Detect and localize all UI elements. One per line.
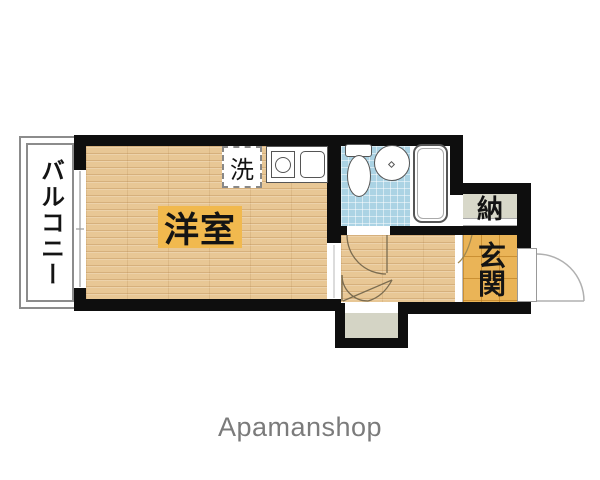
room-label: 洋室 xyxy=(158,206,242,248)
footer-brand-text: Apamanshop xyxy=(218,412,382,442)
wall-bottom-left xyxy=(74,299,341,311)
entrance-label-text: 玄関 xyxy=(476,241,504,297)
storage-label: 納 xyxy=(463,191,517,223)
wall-top xyxy=(74,135,463,146)
toilet-icon xyxy=(347,155,371,197)
wall-bottom-right xyxy=(398,302,531,314)
balcony-label: バルコニー xyxy=(26,143,74,302)
bathroom-door-opening xyxy=(347,226,390,235)
utility-box-threshold xyxy=(345,303,398,313)
footer-brand: Apamanshop xyxy=(0,412,600,443)
wall-left-upper xyxy=(74,146,86,170)
entrance-label: 玄関 xyxy=(467,237,513,300)
floorplan-canvas: バルコニー 洗 xyxy=(0,0,600,480)
laundry-label: 洗 xyxy=(230,150,254,185)
hallway-floor xyxy=(341,235,455,302)
utility-box-fill xyxy=(345,313,398,338)
balcony-label-text: バルコニー xyxy=(33,158,68,288)
stove-burner-ring-icon xyxy=(275,157,291,173)
wall-right-upper xyxy=(517,194,531,248)
bathtub-inner-line xyxy=(417,148,444,219)
kitchen-sink-icon xyxy=(300,151,325,178)
room-label-text: 洋室 xyxy=(164,202,236,253)
room-door-opening xyxy=(327,243,341,299)
entrance-door-threshold xyxy=(517,248,537,302)
storage-label-text: 納 xyxy=(477,189,503,226)
entrance-door-swing-icon xyxy=(537,254,584,301)
window-left xyxy=(74,170,86,288)
laundry-box: 洗 xyxy=(222,146,262,188)
entrance-step-strip xyxy=(455,234,463,302)
